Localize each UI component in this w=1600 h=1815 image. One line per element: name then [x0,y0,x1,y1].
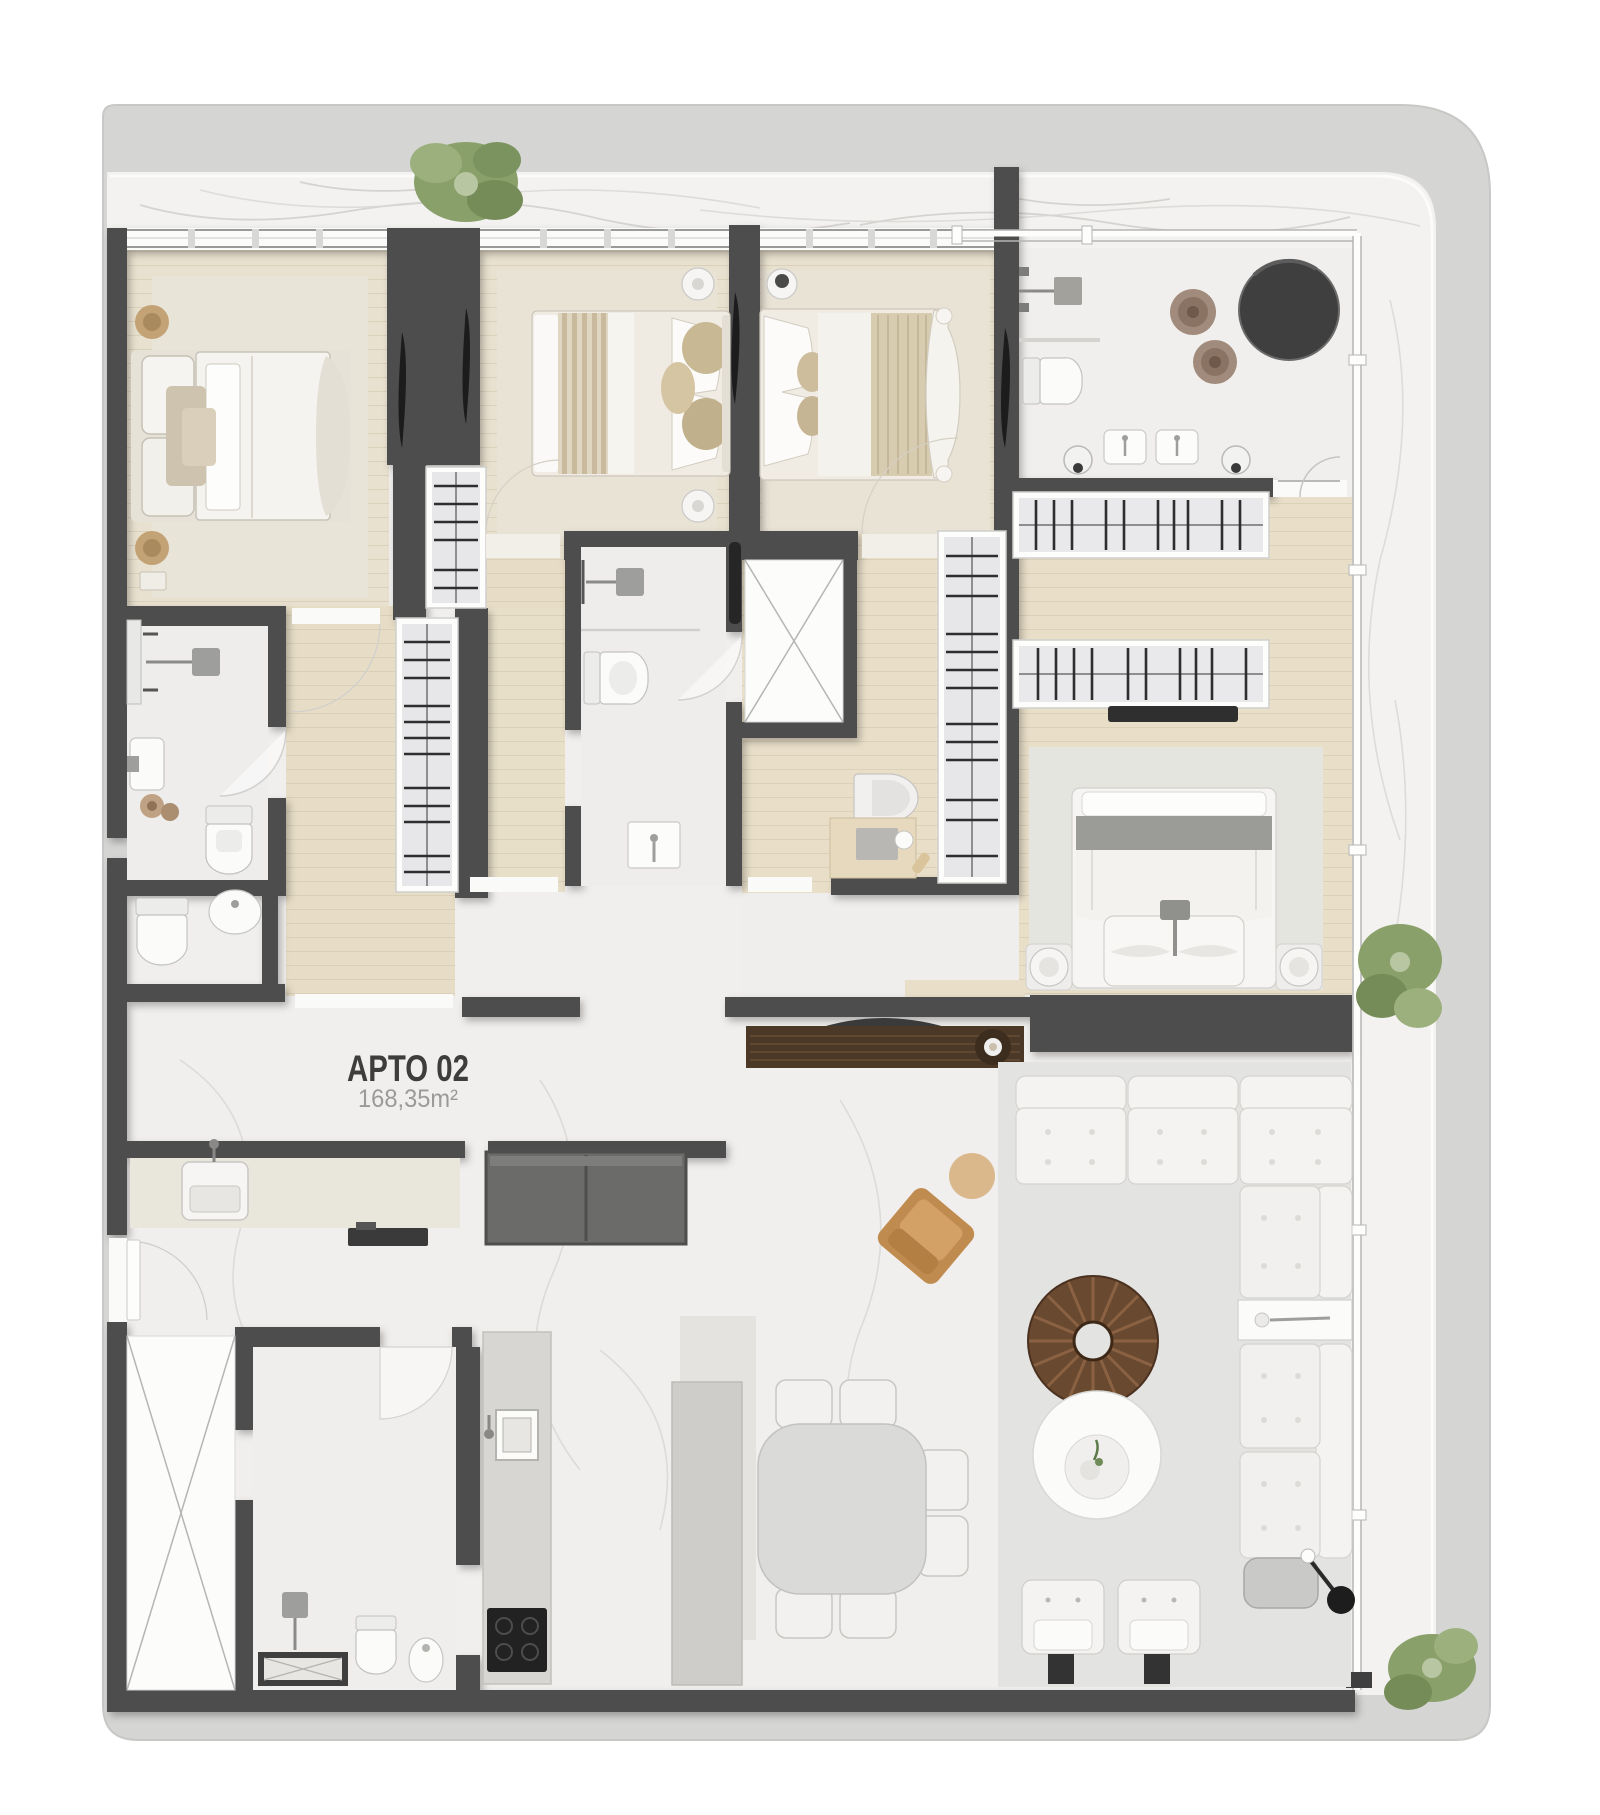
svg-text:168,35m²: 168,35m² [358,1085,458,1113]
svg-text:APTO 02: APTO 02 [347,1048,469,1089]
